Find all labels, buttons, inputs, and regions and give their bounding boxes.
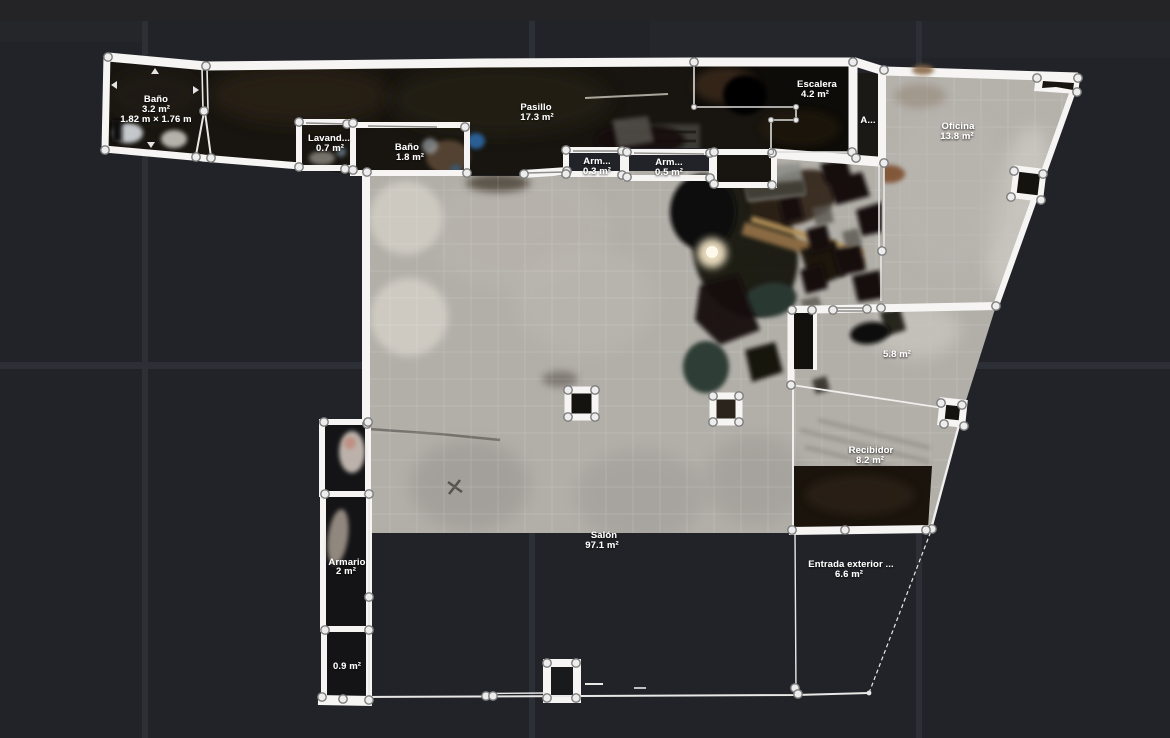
svg-text:17.3 m²: 17.3 m² (520, 112, 553, 123)
svg-text:8.2 m²: 8.2 m² (856, 455, 884, 466)
svg-text:0.5 m²: 0.5 m² (655, 167, 683, 178)
svg-text:4.2 m²: 4.2 m² (801, 89, 829, 100)
svg-text:13.8 m²: 13.8 m² (940, 131, 973, 142)
svg-text:0.9 m²: 0.9 m² (333, 661, 361, 672)
svg-text:1.82 m × 1.76 m: 1.82 m × 1.76 m (120, 114, 191, 125)
svg-text:A...: A... (860, 115, 875, 126)
svg-text:5.8 m²: 5.8 m² (883, 349, 911, 360)
svg-text:6.6 m²: 6.6 m² (835, 569, 863, 580)
svg-text:2 m²: 2 m² (336, 566, 356, 577)
svg-text:0.3 m²: 0.3 m² (583, 166, 611, 177)
svg-text:1.8 m²: 1.8 m² (396, 152, 424, 163)
svg-text:0.7 m²: 0.7 m² (316, 143, 344, 154)
svg-text:97.1 m²: 97.1 m² (585, 540, 618, 551)
